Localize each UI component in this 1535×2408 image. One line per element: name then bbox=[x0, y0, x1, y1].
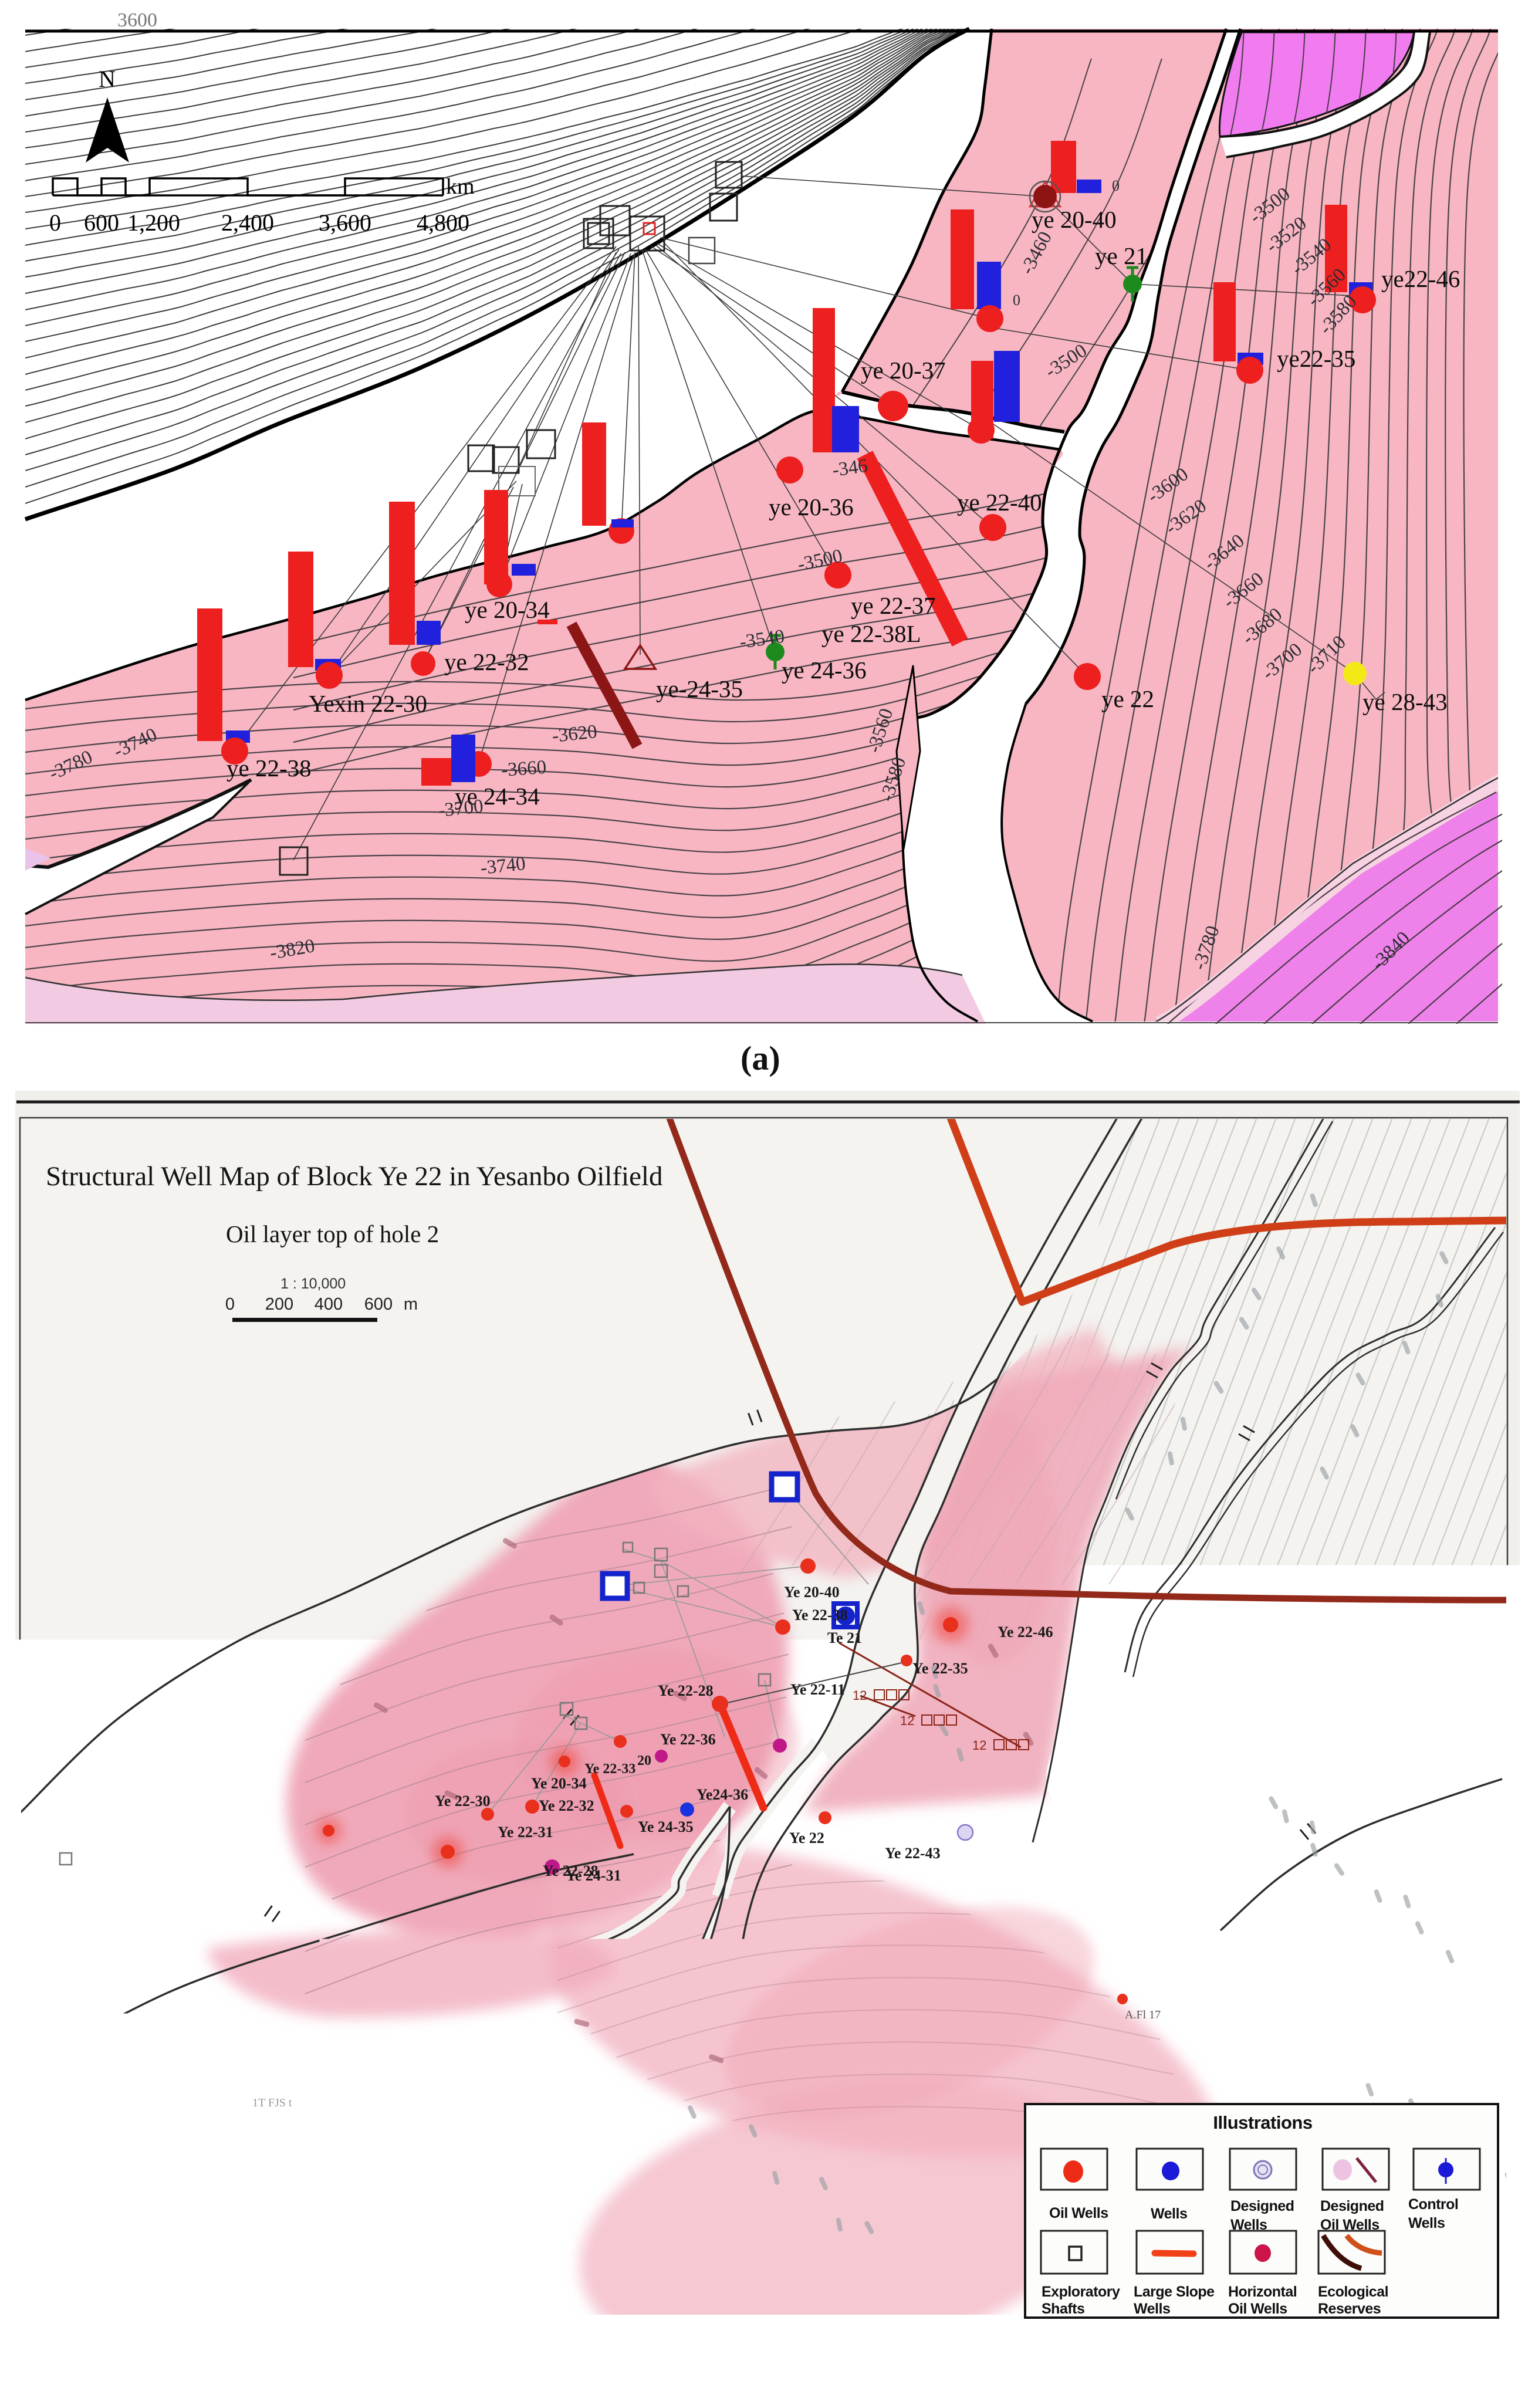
svg-text:12: 12 bbox=[853, 1688, 867, 1703]
svg-text:Ye 22-32: Ye 22-32 bbox=[539, 1797, 594, 1814]
svg-text:Ye 22-36: Ye 22-36 bbox=[660, 1731, 716, 1748]
svg-text:Ye 20-34: Ye 20-34 bbox=[531, 1775, 587, 1792]
svg-text:Shafts: Shafts bbox=[1042, 2301, 1084, 2317]
svg-text:ye 22-40: ye 22-40 bbox=[957, 489, 1042, 516]
svg-text:Designed: Designed bbox=[1230, 2198, 1294, 2214]
svg-text:0: 0 bbox=[1112, 177, 1120, 194]
svg-text:Oil Wells: Oil Wells bbox=[1049, 2205, 1108, 2221]
svg-text:3,600: 3,600 bbox=[319, 209, 371, 236]
svg-text:ye 20-36: ye 20-36 bbox=[769, 493, 854, 520]
svg-text:Ye 22-35: Ye 22-35 bbox=[912, 1660, 968, 1677]
svg-text:Ye 22-38: Ye 22-38 bbox=[792, 1607, 848, 1624]
svg-text:Yexin 22-30: Yexin 22-30 bbox=[309, 690, 427, 717]
svg-text:ye 20-34: ye 20-34 bbox=[465, 596, 550, 623]
svg-text:Ye 22-30: Ye 22-30 bbox=[435, 1793, 491, 1810]
svg-text:Control: Control bbox=[1408, 2196, 1458, 2213]
svg-text:Oil layer top of hole 2: Oil layer top of hole 2 bbox=[226, 1220, 439, 1247]
svg-text:Oil Wells: Oil Wells bbox=[1320, 2217, 1380, 2233]
svg-text:400: 400 bbox=[315, 1295, 343, 1314]
svg-text:ye 22-32: ye 22-32 bbox=[444, 648, 529, 675]
svg-text:ye 22-38L: ye 22-38L bbox=[821, 620, 921, 647]
svg-text:4,800: 4,800 bbox=[417, 209, 469, 236]
svg-text:12: 12 bbox=[900, 1713, 914, 1728]
svg-text:Ye 22: Ye 22 bbox=[789, 1829, 824, 1846]
svg-text:Wells: Wells bbox=[1151, 2206, 1187, 2222]
svg-text:Wells: Wells bbox=[1134, 2301, 1170, 2317]
svg-text:2,400: 2,400 bbox=[221, 209, 274, 236]
svg-text:Ye 22-11: Ye 22-11 bbox=[790, 1681, 845, 1698]
svg-text:Reserves: Reserves bbox=[1318, 2301, 1381, 2317]
svg-text:Ye 22-31: Ye 22-31 bbox=[498, 1824, 553, 1841]
svg-text:Illustrations: Illustrations bbox=[1213, 2112, 1312, 2133]
svg-text:600: 600 bbox=[84, 209, 119, 236]
svg-text:-3660: -3660 bbox=[501, 757, 547, 781]
svg-text:km: km bbox=[446, 174, 475, 199]
svg-text:Ye 22-33: Ye 22-33 bbox=[584, 1761, 635, 1777]
svg-text:Horizontal: Horizontal bbox=[1228, 2284, 1297, 2300]
svg-text:A.Fl 17: A.Fl 17 bbox=[1125, 2008, 1161, 2021]
svg-text:ye22-46: ye22-46 bbox=[1381, 265, 1460, 292]
svg-text:20: 20 bbox=[637, 1753, 651, 1768]
svg-text:0: 0 bbox=[49, 209, 61, 236]
svg-text:0: 0 bbox=[1013, 292, 1020, 309]
svg-text:Ye 24-31: Ye 24-31 bbox=[566, 1867, 621, 1884]
svg-text:600: 600 bbox=[364, 1295, 393, 1314]
svg-text:ye 20-40: ye 20-40 bbox=[1032, 206, 1117, 233]
svg-text:ye 28-43: ye 28-43 bbox=[1362, 688, 1448, 715]
svg-text:Ecological: Ecological bbox=[1318, 2284, 1388, 2300]
svg-text:ye 22-38: ye 22-38 bbox=[226, 755, 312, 782]
svg-text:Ye24-36: Ye24-36 bbox=[697, 1786, 748, 1803]
svg-text:Ye 22-28: Ye 22-28 bbox=[658, 1682, 714, 1699]
svg-text:Oil Wells: Oil Wells bbox=[1228, 2301, 1287, 2317]
svg-text:12: 12 bbox=[972, 1738, 986, 1753]
svg-text:Ye 22-46: Ye 22-46 bbox=[998, 1624, 1053, 1641]
svg-text:Wells: Wells bbox=[1230, 2217, 1267, 2233]
svg-text:Structural Well Map of Block Y: Structural Well Map of Block Ye 22 in Ye… bbox=[46, 1161, 663, 1192]
svg-text:Wells: Wells bbox=[1408, 2215, 1445, 2231]
svg-text:Exploratory: Exploratory bbox=[1042, 2284, 1120, 2300]
svg-text:Designed: Designed bbox=[1320, 2198, 1384, 2214]
svg-text:1T FJS t: 1T FJS t bbox=[252, 2096, 292, 2109]
svg-text:ye 20-37: ye 20-37 bbox=[861, 357, 946, 384]
svg-text:ye 22: ye 22 bbox=[1101, 685, 1154, 712]
svg-text:3600: 3600 bbox=[117, 9, 157, 31]
svg-text:ye-24-35: ye-24-35 bbox=[656, 675, 743, 702]
svg-text:ye 22-37: ye 22-37 bbox=[851, 592, 936, 619]
svg-text:Ye 20-40: Ye 20-40 bbox=[784, 1584, 840, 1601]
svg-text:Ye 24-35: Ye 24-35 bbox=[638, 1818, 694, 1835]
svg-text:1 : 10,000: 1 : 10,000 bbox=[280, 1276, 346, 1292]
svg-text:ye 24-36: ye 24-36 bbox=[782, 657, 867, 684]
svg-text:0: 0 bbox=[225, 1295, 235, 1314]
svg-text:200: 200 bbox=[265, 1295, 293, 1314]
svg-text:1,200: 1,200 bbox=[127, 209, 180, 236]
svg-text:ye22-35: ye22-35 bbox=[1277, 345, 1355, 372]
svg-text:Large Slope: Large Slope bbox=[1134, 2284, 1215, 2300]
svg-text:Ye 22-43: Ye 22-43 bbox=[885, 1845, 941, 1862]
svg-text:N: N bbox=[99, 66, 116, 92]
svg-text:ye 21: ye 21 bbox=[1095, 242, 1148, 269]
svg-text:m: m bbox=[404, 1295, 418, 1314]
svg-text:Te 21: Te 21 bbox=[827, 1629, 862, 1646]
